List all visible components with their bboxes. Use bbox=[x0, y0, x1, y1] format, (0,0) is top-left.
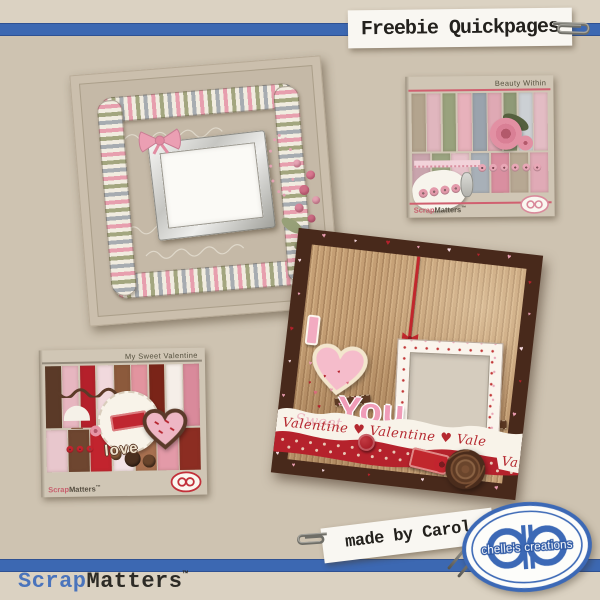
red-flower-row bbox=[66, 446, 93, 453]
accent-dot bbox=[283, 137, 286, 140]
heart-sprinkle: ♥ bbox=[322, 374, 326, 380]
paperclip-icon bbox=[292, 525, 332, 552]
pink-flower-icon bbox=[490, 118, 522, 150]
rose-garland bbox=[478, 163, 541, 172]
scrapmatters-brand: ScrapMatters™ bbox=[18, 569, 188, 594]
paper-swatch bbox=[427, 93, 441, 151]
accent-dot bbox=[272, 179, 275, 182]
flower-dot bbox=[451, 183, 461, 193]
paper-swatch bbox=[530, 152, 549, 192]
heart-sprinkle: ♥ bbox=[322, 233, 327, 240]
brand-tm: ™ bbox=[182, 570, 188, 580]
word-art: love bbox=[104, 439, 140, 459]
flower-dot bbox=[429, 186, 439, 196]
paper-swatch bbox=[473, 93, 487, 151]
header-title: Freebie Quickpages bbox=[361, 15, 559, 40]
chocolate-rose-icon bbox=[441, 445, 490, 494]
scrapmatters-mini-brand: ScrapMatters™ bbox=[48, 484, 101, 494]
heart-sprinkle: ♥ bbox=[385, 239, 390, 247]
made-by-text: made by Carol bbox=[344, 518, 472, 552]
heart-sprinkle: ♥ bbox=[518, 380, 521, 385]
paper-swatch bbox=[46, 430, 67, 472]
berry-icon bbox=[307, 214, 316, 223]
banner-fragment-text: Va bbox=[501, 454, 520, 471]
paper-swatch bbox=[534, 92, 548, 150]
accent-dot bbox=[291, 178, 294, 181]
flower-dot bbox=[418, 188, 428, 198]
berry-icon bbox=[299, 185, 310, 196]
flower-dot bbox=[440, 184, 450, 194]
heart-sprinkle: ♥ bbox=[417, 245, 421, 250]
heart-sprinkle: ♥ bbox=[506, 253, 512, 261]
flower-dot bbox=[533, 163, 541, 171]
header-strip: Freebie Quickpages bbox=[348, 8, 572, 49]
flower-dot bbox=[500, 164, 508, 172]
paper-swatch bbox=[457, 93, 471, 151]
paper-swatch bbox=[411, 94, 425, 152]
kit-preview-beauty-within: Beauty Within ScrapMatters™ bbox=[405, 75, 554, 218]
preview-spine bbox=[405, 77, 410, 218]
berry-icon bbox=[312, 196, 321, 205]
chelles-mini-logo bbox=[520, 194, 550, 214]
paper-swatch bbox=[491, 153, 510, 193]
heart-sprinkle: ♥ bbox=[494, 485, 500, 493]
heart-sprinkle: ♥ bbox=[420, 477, 425, 484]
chelles-mini-logo bbox=[170, 471, 202, 494]
brand-suffix: Matters bbox=[87, 569, 183, 594]
berry-icon bbox=[306, 170, 316, 180]
quickpage-valentine: ♥♥♥♥♥♥♥♥♥♥♥♥♥♥♥♥♥♥♥♥♥♥♥♥♥♥♥ You ♥♥♥♥♥♥♥♥… bbox=[271, 228, 543, 500]
heart-sprinkle: ♥ bbox=[337, 370, 341, 375]
heart-cookie-icon bbox=[142, 408, 189, 451]
flower-dot bbox=[478, 164, 486, 172]
kit-preview-my-sweet-valentine: My Sweet Valentine love ScrapMatters™ bbox=[39, 348, 208, 498]
heart-sprinkle: ♥ bbox=[519, 346, 524, 354]
brand-tm: ™ bbox=[96, 484, 101, 490]
flower-dot bbox=[86, 446, 93, 453]
heart-sprinkle: ♥ bbox=[298, 258, 302, 264]
paper-swatch bbox=[471, 153, 490, 193]
accent-dot bbox=[288, 189, 291, 192]
accent-dot bbox=[269, 149, 272, 152]
heart-sprinkle: ♥ bbox=[353, 239, 358, 245]
paperclip-icon bbox=[549, 13, 596, 43]
heart-sprinkle: ♥ bbox=[447, 247, 451, 254]
heart-sprinkle: ♥ bbox=[288, 325, 294, 333]
brand-prefix: Scrap bbox=[414, 205, 435, 214]
dotted-heart-accent bbox=[80, 66, 311, 85]
empty-photo-area bbox=[160, 142, 264, 229]
corduroy-background: You ♥♥♥♥♥♥♥♥♥♥♥♥♥♥ Sweet Valentine ♥ Val… bbox=[287, 244, 526, 483]
perfume-bottle-icon bbox=[460, 172, 473, 197]
brand-suffix: Matters bbox=[69, 484, 96, 493]
kit-title: Beauty Within bbox=[495, 78, 547, 88]
flower-dot bbox=[522, 163, 530, 171]
paper-swatch bbox=[510, 152, 529, 192]
flower-dot bbox=[489, 164, 497, 172]
brand-tm: ™ bbox=[461, 205, 466, 211]
accent-dot bbox=[277, 190, 280, 193]
heart-sprinkle: ♥ bbox=[292, 463, 296, 469]
flower-dot bbox=[511, 164, 519, 172]
paper-swatch bbox=[442, 93, 456, 151]
striped-scallop-border-left bbox=[96, 99, 137, 296]
heart-sprinkle: ♥ bbox=[288, 360, 292, 365]
heart-sprinkle: ♥ bbox=[526, 312, 531, 318]
pink-bow-icon bbox=[136, 125, 184, 157]
striped-scallop-border-top bbox=[99, 82, 296, 123]
accent-line bbox=[408, 88, 550, 91]
berry-spray bbox=[80, 66, 311, 85]
lace-trim bbox=[414, 160, 480, 168]
accent-dot bbox=[288, 148, 291, 151]
flower-dot bbox=[66, 446, 73, 453]
brand-suffix: Matters bbox=[434, 205, 461, 214]
flower-dot bbox=[76, 446, 83, 453]
heart-sprinkle: ♥ bbox=[476, 253, 480, 258]
scrapmatters-mini-brand: ScrapMatters™ bbox=[414, 205, 467, 215]
accent-dot bbox=[269, 165, 272, 168]
accent-dot bbox=[273, 138, 276, 141]
promo-graphic: Freebie Quickpages bbox=[0, 0, 600, 600]
brand-prefix: Scrap bbox=[48, 485, 69, 494]
heart-sprinkle: ♥ bbox=[308, 361, 313, 368]
heart-sprinkle: ♥ bbox=[346, 381, 350, 386]
heart-sprinkle: ♥ bbox=[321, 469, 325, 475]
chelles-creations-logo: chelle's creations bbox=[457, 495, 597, 598]
heart-sprinkle: ♥ bbox=[527, 280, 532, 287]
brand-prefix: Scrap bbox=[18, 569, 87, 594]
pink-flower-icon bbox=[518, 135, 533, 150]
heart-sprinkle: ♥ bbox=[367, 473, 371, 479]
striped-scallop-border-bottom bbox=[113, 259, 310, 300]
heart-sprinkle: ♥ bbox=[297, 292, 301, 298]
